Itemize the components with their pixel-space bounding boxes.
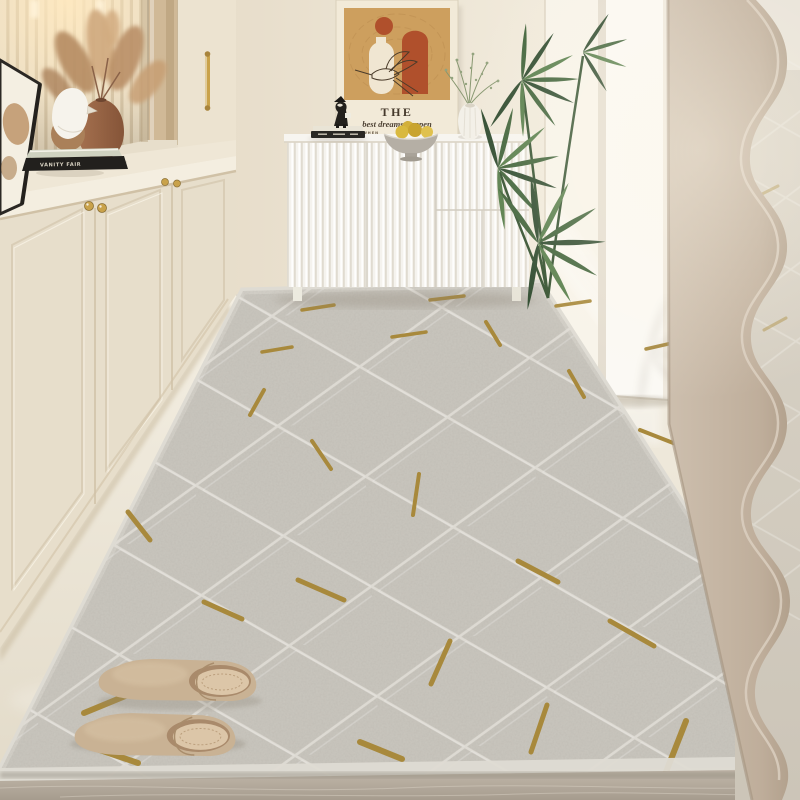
- book-spine-text: VANITY FAIR: [40, 162, 81, 169]
- art-circle: [375, 17, 393, 35]
- window-light-glow: [450, 0, 800, 400]
- art-vessel: [369, 42, 394, 94]
- entryway-photo: THE best dreams happen WHEN: [0, 0, 800, 800]
- marble-floor: [0, 769, 800, 800]
- tall-cabinet-door: [178, 0, 236, 150]
- stacked-books: VANITY FAIR: [22, 148, 128, 171]
- slipper-left: [75, 713, 236, 756]
- art-title: THE: [381, 105, 414, 119]
- sideboard-decor-books: [308, 126, 368, 142]
- rug-edge-shadow: [0, 772, 800, 778]
- slipper-right: [99, 659, 257, 701]
- entryway-scene: THE best dreams happen WHEN: [0, 0, 800, 800]
